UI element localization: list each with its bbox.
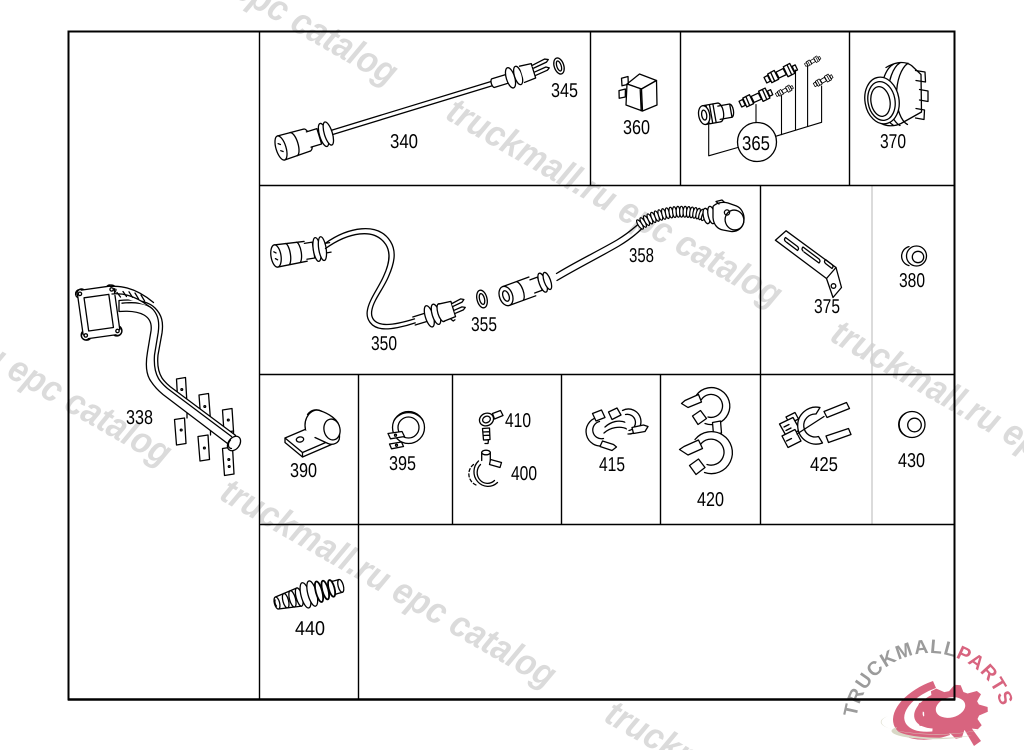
svg-text:410: 410 (505, 410, 531, 432)
svg-text:395: 395 (389, 453, 416, 475)
svg-text:390: 390 (290, 460, 317, 482)
svg-text:358: 358 (629, 245, 654, 267)
svg-text:365: 365 (742, 133, 770, 155)
svg-text:430: 430 (898, 450, 925, 472)
svg-text:338: 338 (126, 407, 153, 429)
svg-text:340: 340 (390, 131, 418, 153)
svg-text:350: 350 (371, 333, 397, 355)
svg-text:420: 420 (697, 489, 724, 511)
svg-text:415: 415 (599, 454, 625, 476)
svg-text:360: 360 (623, 117, 650, 139)
svg-text:440: 440 (295, 618, 325, 640)
svg-text:375: 375 (814, 296, 840, 318)
svg-text:400: 400 (511, 463, 537, 485)
svg-text:355: 355 (471, 314, 497, 336)
svg-text:380: 380 (899, 270, 925, 292)
svg-text:425: 425 (810, 454, 838, 476)
svg-text:345: 345 (551, 80, 578, 102)
svg-text:370: 370 (880, 131, 906, 153)
